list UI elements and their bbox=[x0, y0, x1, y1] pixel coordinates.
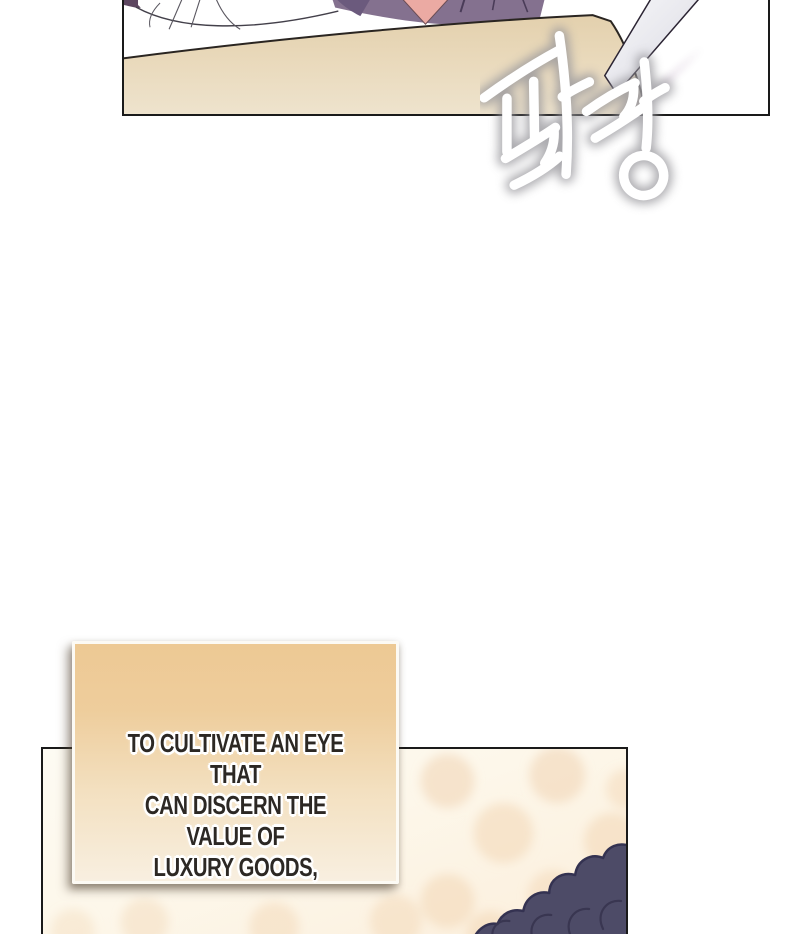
caption-line: TO CULTIVATE AN EYE THAT bbox=[110, 728, 360, 790]
caption-line: CAN DISCERN THE VALUE OF bbox=[110, 790, 360, 852]
sfx-strokes bbox=[480, 20, 692, 232]
caption-text: TO CULTIVATE AN EYE THAT CAN DISCERN THE… bbox=[110, 728, 360, 883]
webtoon-page: 팔랑 bbox=[0, 0, 800, 934]
caption-box: TO CULTIVATE AN EYE THAT CAN DISCERN THE… bbox=[72, 641, 399, 884]
caption-line: LUXURY GOODS, bbox=[110, 852, 360, 883]
sfx-flutter: 팔랑 bbox=[480, 20, 692, 232]
